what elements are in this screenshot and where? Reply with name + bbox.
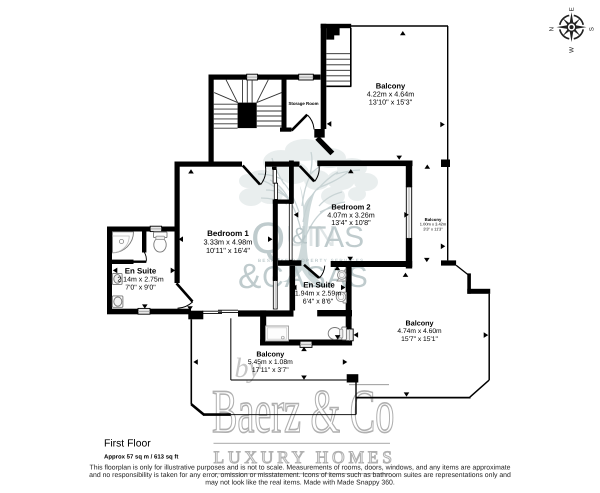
svg-text:N: N	[549, 27, 556, 31]
svg-text:W: W	[568, 47, 575, 53]
svg-text:2.14m x 2.75m: 2.14m x 2.75m	[117, 277, 163, 284]
svg-text:1.94m x 2.59m: 1.94m x 2.59m	[295, 291, 341, 298]
svg-text:Approx 57 sq m / 613 sq ft: Approx 57 sq m / 613 sq ft	[104, 454, 178, 461]
svg-text:may not look like the real ite: may not look like the real items. Made w…	[205, 479, 395, 486]
svg-text:Balcony: Balcony	[406, 319, 434, 328]
svg-text:6'4" x 8'6": 6'4" x 8'6"	[303, 298, 334, 305]
svg-text:and no responsibility is taken: and no responsibility is taken for any e…	[89, 472, 511, 479]
svg-text:This floorplan is only for ill: This floorplan is only for illustrative …	[90, 465, 511, 472]
svg-text:13'4" x 10'8": 13'4" x 10'8"	[331, 218, 371, 227]
svg-text:3'3" x 11'3": 3'3" x 11'3"	[423, 226, 443, 231]
svg-text:En Suite: En Suite	[125, 267, 157, 276]
svg-text:13'10" x 15'3": 13'10" x 15'3"	[369, 97, 413, 106]
svg-text:4.74m x 4.60m: 4.74m x 4.60m	[397, 328, 442, 335]
svg-text:Baerz & Co: Baerz & Co	[212, 378, 394, 446]
svg-text:15'7" x 15'1": 15'7" x 15'1"	[401, 336, 438, 343]
svg-text:Storage Room: Storage Room	[288, 101, 318, 106]
svg-text:5.45m x 1.08m: 5.45m x 1.08m	[248, 359, 293, 366]
svg-text:First Floor: First Floor	[104, 438, 151, 449]
svg-text:S: S	[588, 27, 595, 31]
svg-text:10'11" x 16'4": 10'11" x 16'4"	[206, 246, 250, 255]
svg-text:7'0" x 9'0": 7'0" x 9'0"	[125, 284, 156, 291]
svg-text:17'11" x 3'7": 17'11" x 3'7"	[252, 367, 289, 374]
svg-text:En Suite: En Suite	[303, 281, 335, 290]
svg-text:&: &	[292, 223, 307, 249]
svg-text:Balcony: Balcony	[256, 349, 284, 358]
svg-text:E: E	[568, 7, 575, 11]
